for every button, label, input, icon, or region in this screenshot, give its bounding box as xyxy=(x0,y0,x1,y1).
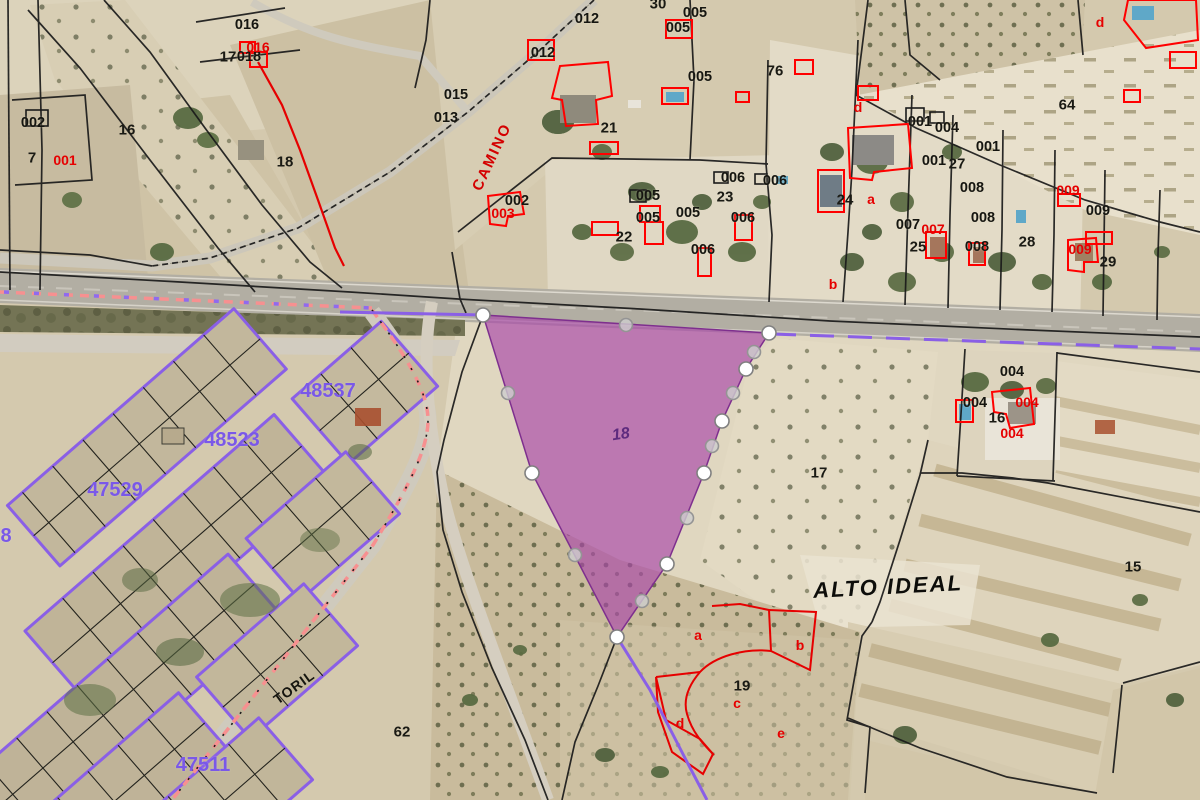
parcel-vertex-handle[interactable] xyxy=(762,326,776,340)
parcel-midpoint-handle[interactable] xyxy=(569,549,582,562)
parcel-midpoint-handle[interactable] xyxy=(620,319,633,332)
parcel-vertex-handle[interactable] xyxy=(610,630,624,644)
parcel-midpoint-handle[interactable] xyxy=(727,387,740,400)
parcel-midpoint-handle[interactable] xyxy=(706,440,719,453)
map-graphics xyxy=(0,0,1200,800)
parcel-vertex-handle[interactable] xyxy=(739,362,753,376)
parcel-vertex-handle[interactable] xyxy=(525,466,539,480)
parcel-midpoint-handle[interactable] xyxy=(636,595,649,608)
parcel-midpoint-handle[interactable] xyxy=(502,387,515,400)
parcel-midpoint-handle[interactable] xyxy=(748,346,761,359)
map-canvas[interactable]: 1618161715621921222324252728293064761770… xyxy=(0,0,1200,800)
parcel-vertex-handle[interactable] xyxy=(476,308,490,322)
parcel-midpoint-handle[interactable] xyxy=(681,512,694,525)
parcel-vertex-handle[interactable] xyxy=(715,414,729,428)
parcel-vertex-handle[interactable] xyxy=(697,466,711,480)
parcel-vertex-handle[interactable] xyxy=(660,557,674,571)
